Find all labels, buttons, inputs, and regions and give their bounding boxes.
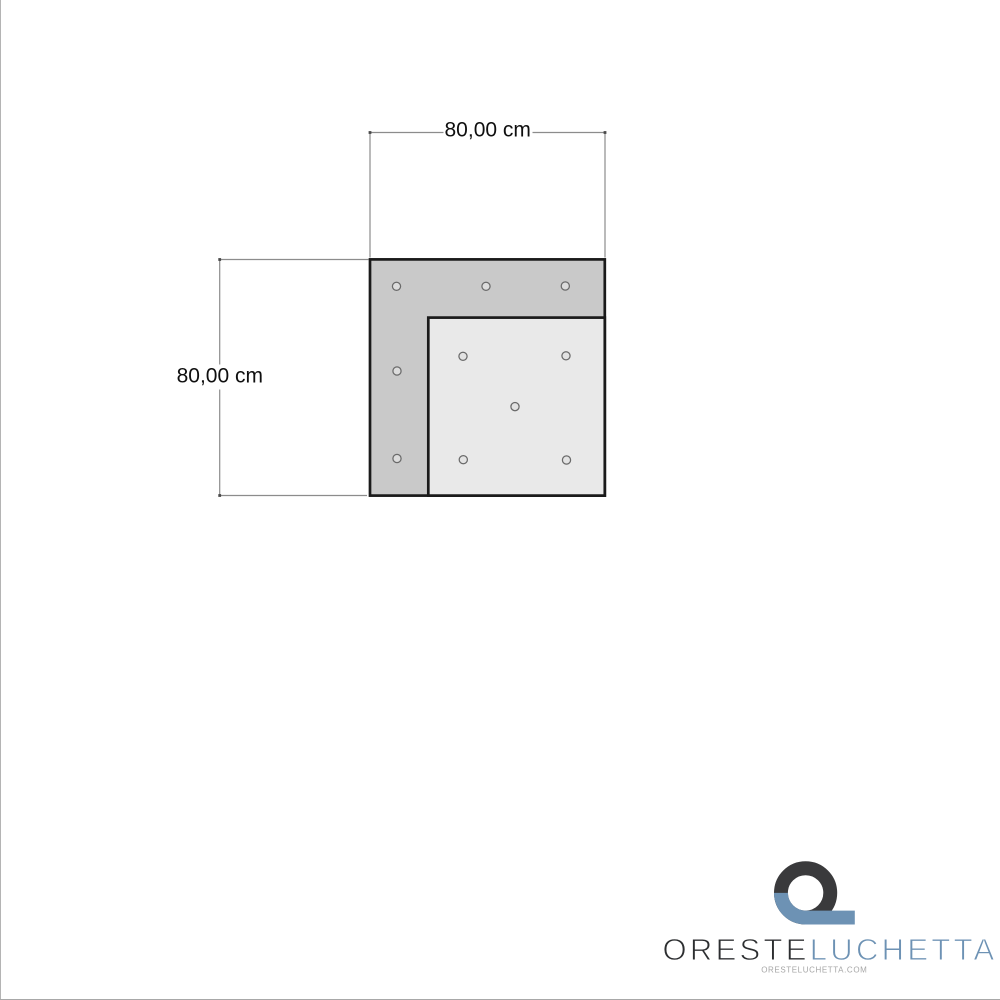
- svg-text:ORESTELUCHETTA.COM: ORESTELUCHETTA.COM: [761, 965, 867, 974]
- svg-text:80,00 cm: 80,00 cm: [445, 119, 531, 142]
- svg-text:80,00 cm: 80,00 cm: [177, 364, 263, 387]
- svg-text:ORESTELUCHETTA: ORESTELUCHETTA: [662, 932, 997, 967]
